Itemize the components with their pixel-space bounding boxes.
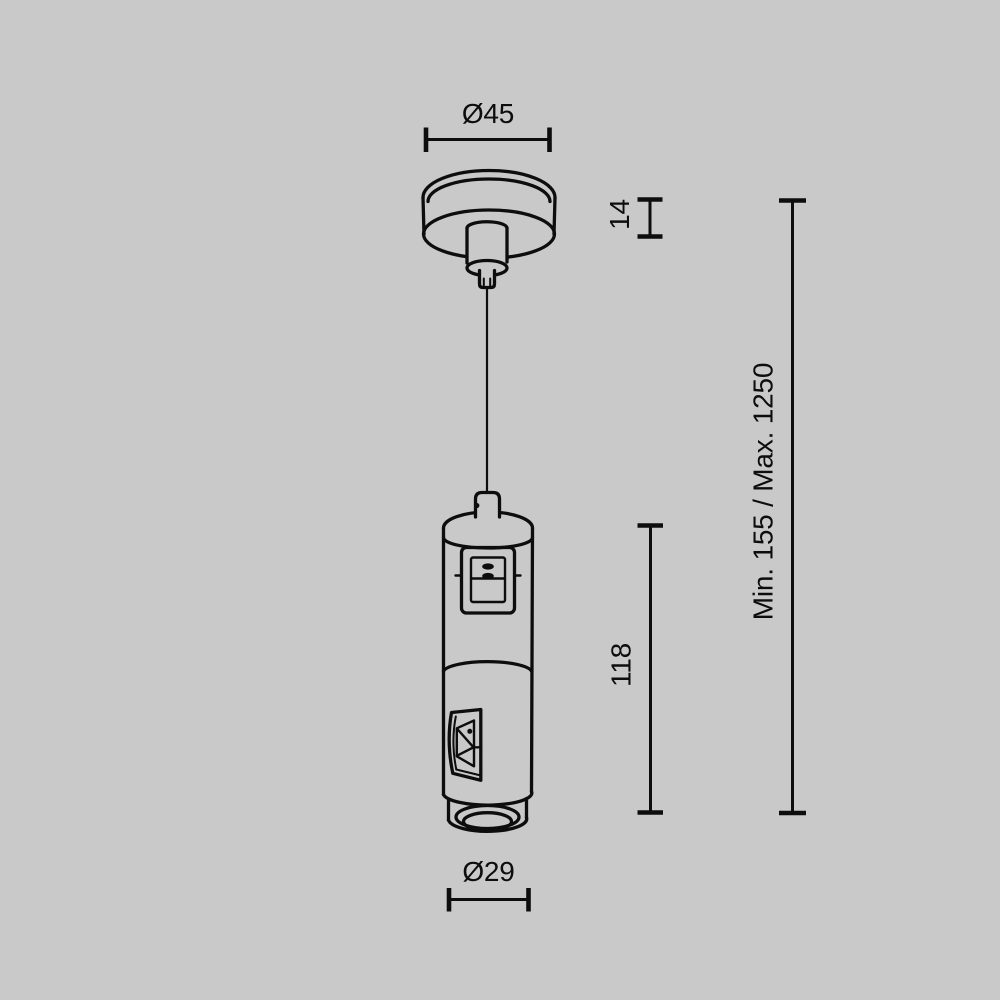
dimension-body-length: 118 [606,526,664,813]
nipple-mask [480,271,495,288]
terminal-hole-bottom [482,573,494,579]
dimension-body-diameter: Ø29 [449,856,529,912]
canopy-top-inner-arc [428,179,550,201]
canopy-height-label: 14 [604,199,635,230]
body-length-label: 118 [606,643,637,687]
strain-relief-mask [467,222,507,263]
dimension-canopy-height: 14 [604,199,663,236]
technical-drawing-canvas: Ø45 [0,0,1000,1000]
dimension-canopy-diameter: Ø45 [426,98,550,152]
pendant-suspension-drawing: Ø45 [0,0,1000,1000]
lever-screw [467,729,472,734]
ceiling-canopy [423,171,555,288]
terminal-hole-top [482,563,494,569]
body-diameter-label: Ø29 [462,856,514,887]
middle-band-arc [444,662,532,671]
dimension-suspension-length: Min. 155 / Max. 1250 [748,201,807,814]
canopy-top-outer-arc [423,171,555,198]
fixture-body [444,493,533,832]
cap-set-screw [474,503,479,508]
lever-diagonal-bottom [457,747,473,755]
canopy-diameter-label: Ø45 [462,98,514,129]
body-bottom-arc [444,792,532,806]
body-right-wall [532,528,533,792]
suspension-length-label: Min. 155 / Max. 1250 [748,363,779,620]
